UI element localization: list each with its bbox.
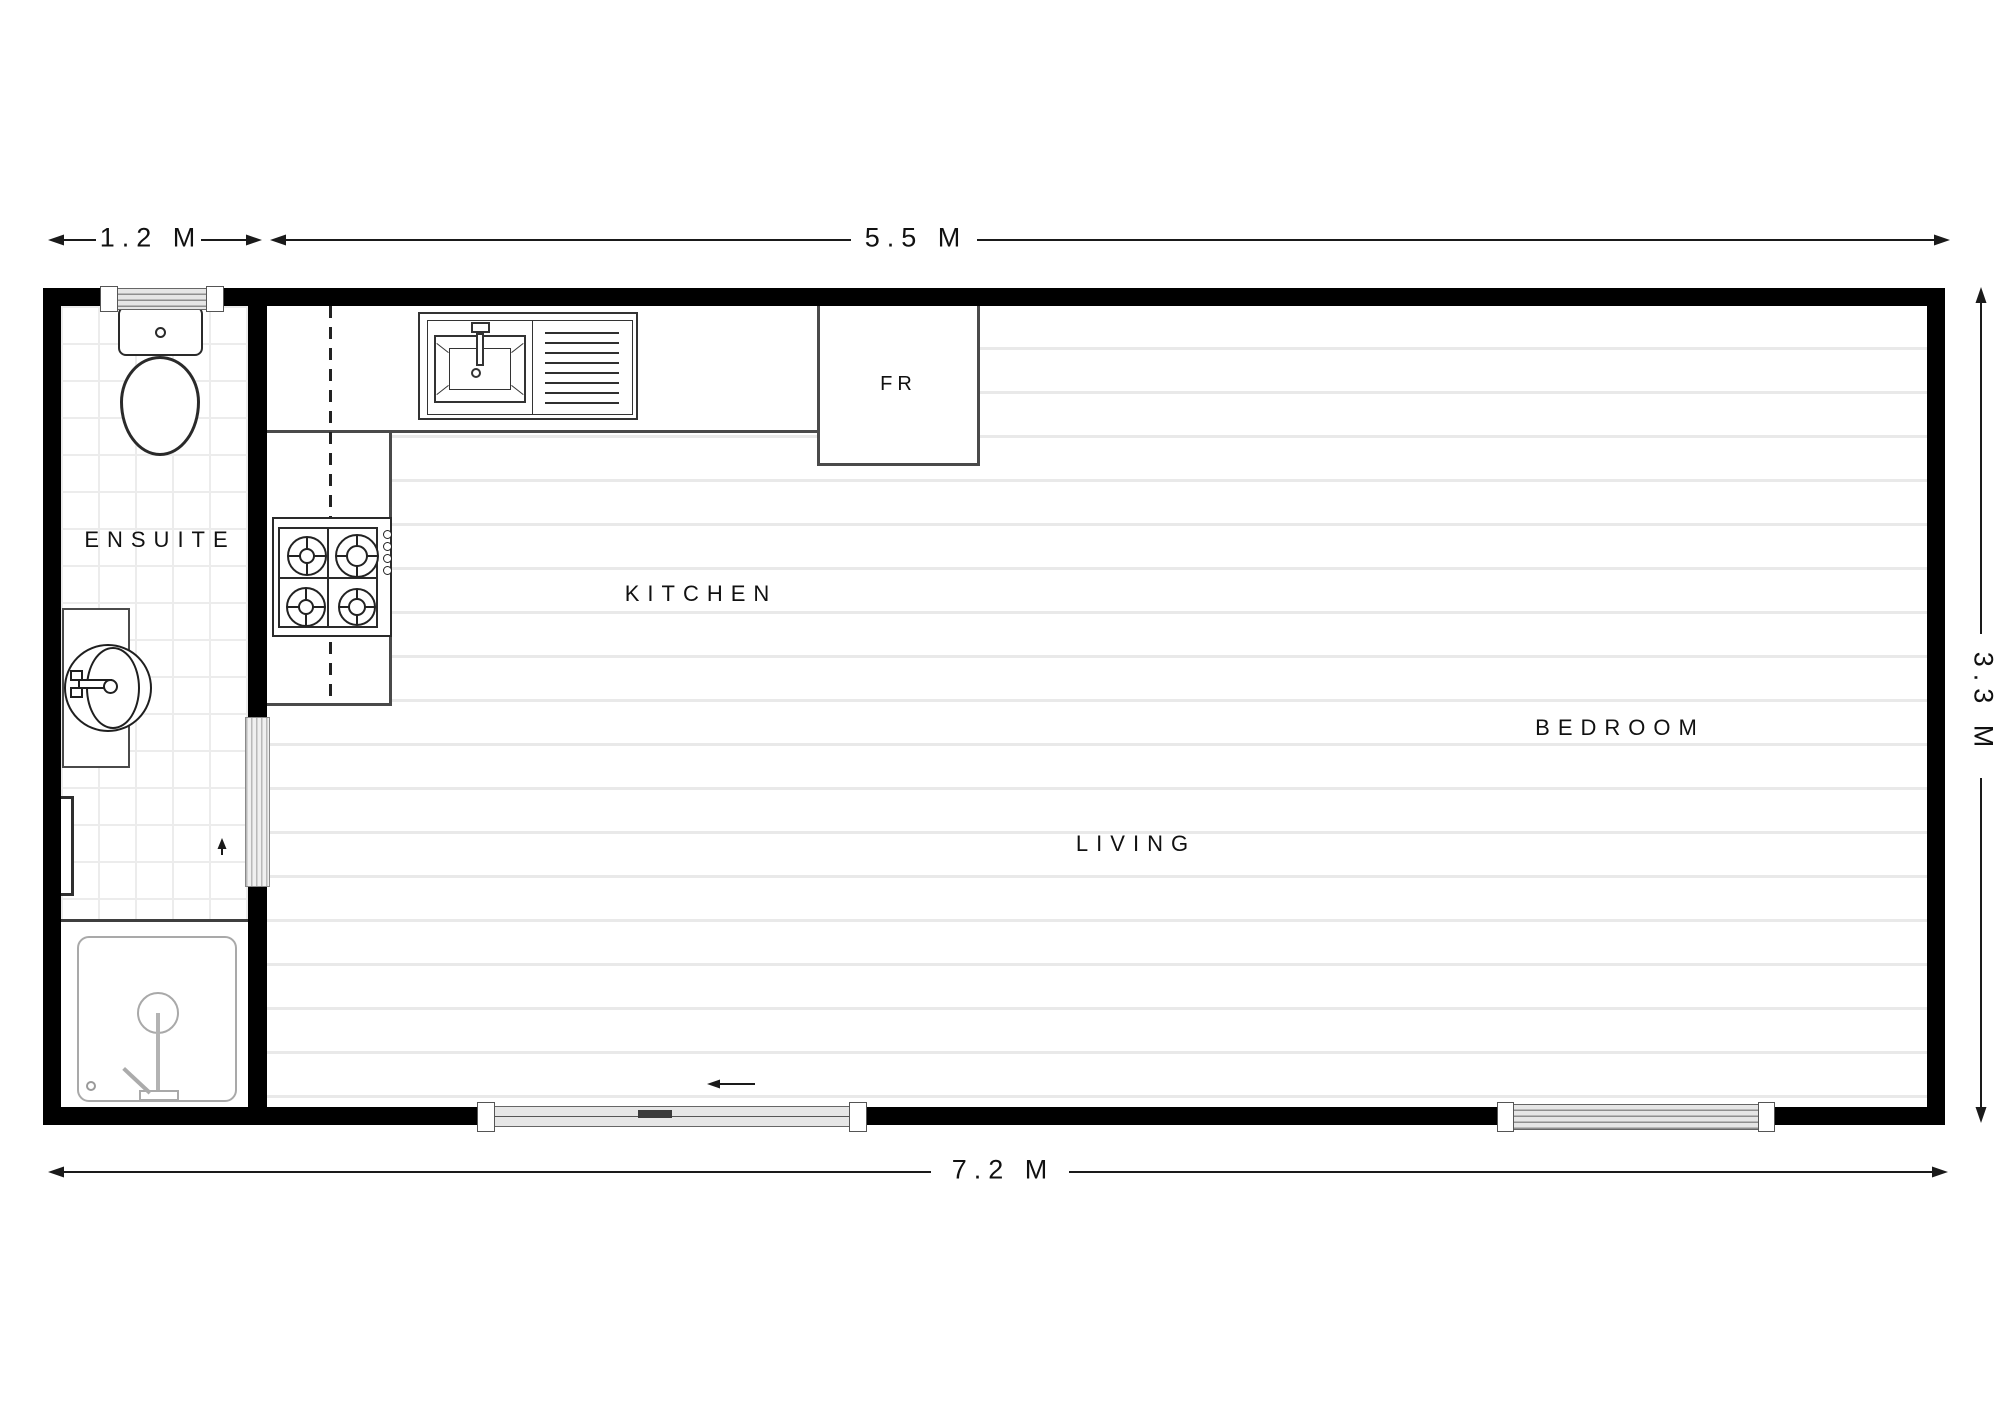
dim-label-depth: 3.3 M — [1968, 652, 1999, 755]
door-jamb — [849, 1102, 867, 1132]
bedroom-window-icon — [1510, 1104, 1762, 1130]
window-jamb — [100, 286, 118, 312]
ensuite-window-icon — [114, 288, 210, 310]
window-jamb — [206, 286, 224, 312]
window-jamb — [1497, 1102, 1514, 1132]
window-jamb — [1758, 1102, 1775, 1132]
room-label-bedroom: BEDROOM — [1535, 715, 1705, 741]
exterior-walls — [43, 288, 1945, 1125]
room-label-kitchen: KITCHEN — [625, 581, 778, 607]
entry-sliding-door-icon — [491, 1106, 851, 1127]
dim-label-main-width: 5.5 M — [865, 223, 968, 254]
room-label-living: LIVING — [1076, 831, 1196, 857]
dim-label-ensuite-width: 1.2 M — [100, 223, 203, 254]
door-jamb — [477, 1102, 495, 1132]
dim-label-total-width: 7.2 M — [952, 1155, 1055, 1186]
room-label-ensuite: ENSUITE — [84, 527, 235, 553]
door-panel-overlap — [638, 1110, 672, 1118]
floorplan-canvas: FR — [0, 0, 2000, 1414]
